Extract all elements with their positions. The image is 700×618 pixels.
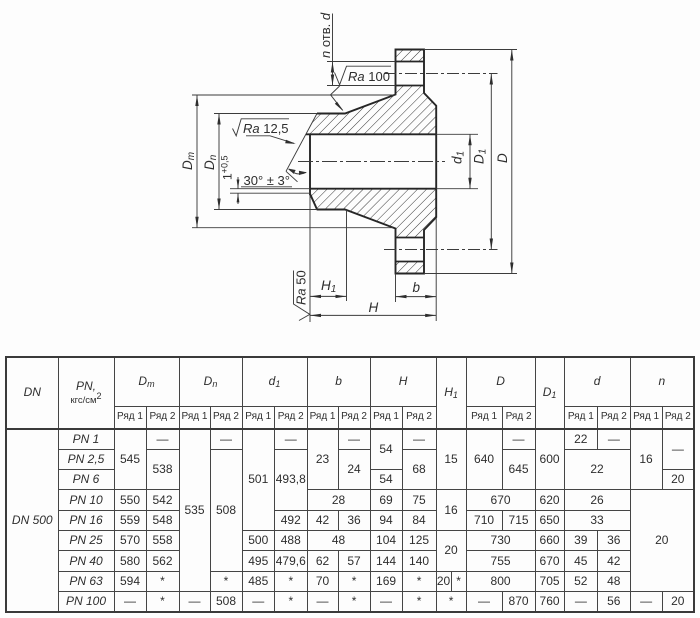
- svg-text:Ra 100: Ra 100: [348, 69, 390, 84]
- svg-text:Ra 12,5: Ra 12,5: [243, 121, 289, 136]
- svg-text:30° ± 3°: 30° ± 3°: [244, 173, 290, 188]
- svg-text:b: b: [413, 280, 421, 295]
- svg-text:D: D: [495, 153, 510, 163]
- svg-text:H: H: [369, 300, 379, 315]
- svg-text:n отв. d: n отв. d: [318, 12, 333, 58]
- svg-text:Ra 50: Ra 50: [294, 270, 309, 305]
